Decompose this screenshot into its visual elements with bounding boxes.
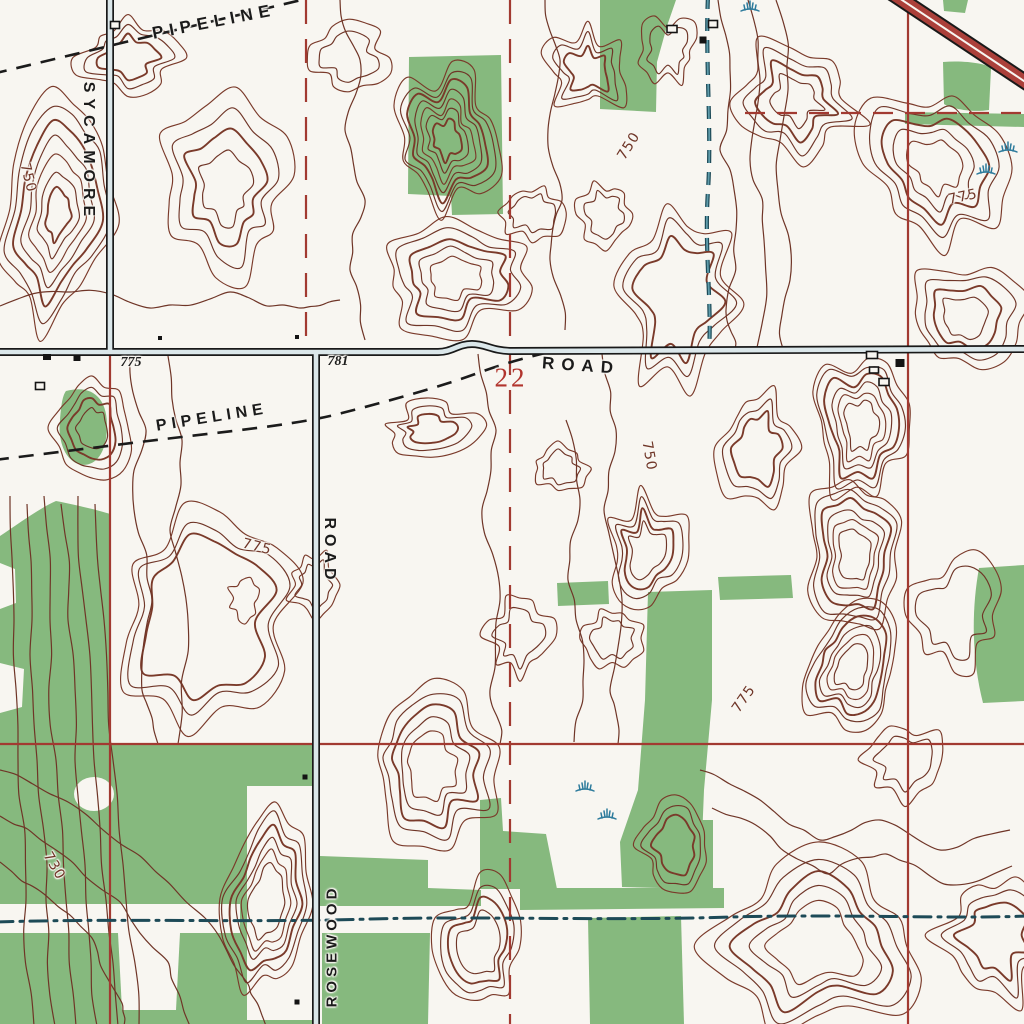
building-open xyxy=(870,367,879,373)
building-solid xyxy=(896,359,905,367)
road-label-road-south: ROAD xyxy=(320,517,338,584)
topo-map-canvas xyxy=(0,0,1024,1024)
road-label-sycamore: SYCAMORE xyxy=(79,82,97,222)
marsh-icon xyxy=(741,1,759,11)
topo-map-viewport[interactable]: SYCAMOREROADROADROSEWOODPIPELINEPIPELINE… xyxy=(0,0,1024,1024)
building-solid xyxy=(303,775,308,780)
marsh-icon xyxy=(977,164,995,174)
road-label-rosewood: ROSEWOOD xyxy=(324,885,341,1008)
building-open xyxy=(867,352,878,359)
section-number: 22 xyxy=(495,363,528,394)
marsh-icon xyxy=(999,142,1017,152)
building-solid xyxy=(74,355,81,361)
marsh-icon xyxy=(576,781,594,791)
building-solid xyxy=(700,37,707,44)
spot-elevation-781: 781 xyxy=(328,354,349,370)
spot-elevation-775: 775 xyxy=(121,355,142,371)
building-solid xyxy=(158,336,162,340)
building-open xyxy=(709,21,718,28)
building-open xyxy=(879,379,889,386)
marsh-icon xyxy=(598,809,616,819)
building-solid xyxy=(295,1000,300,1005)
building-open xyxy=(111,22,120,29)
building-open xyxy=(36,383,45,390)
building-solid xyxy=(43,354,51,360)
building-solid xyxy=(295,335,299,339)
building-open xyxy=(667,26,677,33)
